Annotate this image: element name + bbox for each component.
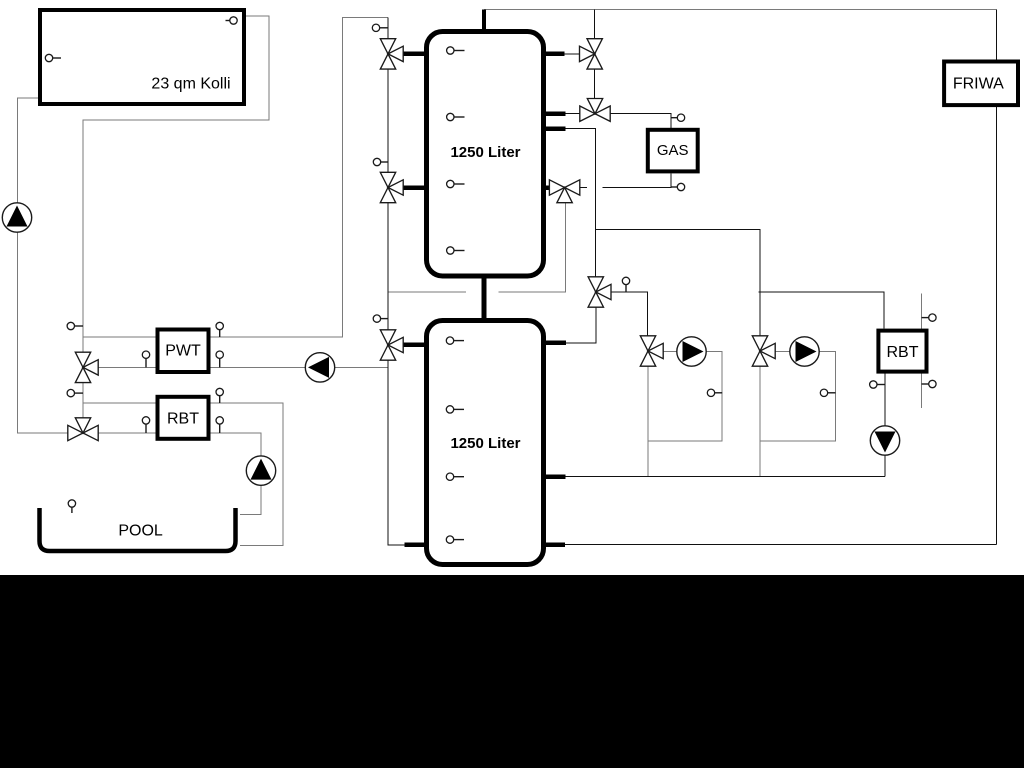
svg-text:POOL: POOL [118,522,163,539]
svg-text:RBT: RBT [167,410,199,427]
svg-text:1250 Liter: 1250 Liter [450,435,520,452]
svg-text:1250 Liter: 1250 Liter [450,144,520,161]
svg-text:PWT: PWT [165,343,201,360]
svg-text:GAS: GAS [657,142,689,159]
svg-text:23 qm Kolli: 23 qm Kolli [151,76,230,93]
svg-text:FRIWA: FRIWA [953,76,1004,93]
svg-text:RBT: RBT [887,344,919,361]
